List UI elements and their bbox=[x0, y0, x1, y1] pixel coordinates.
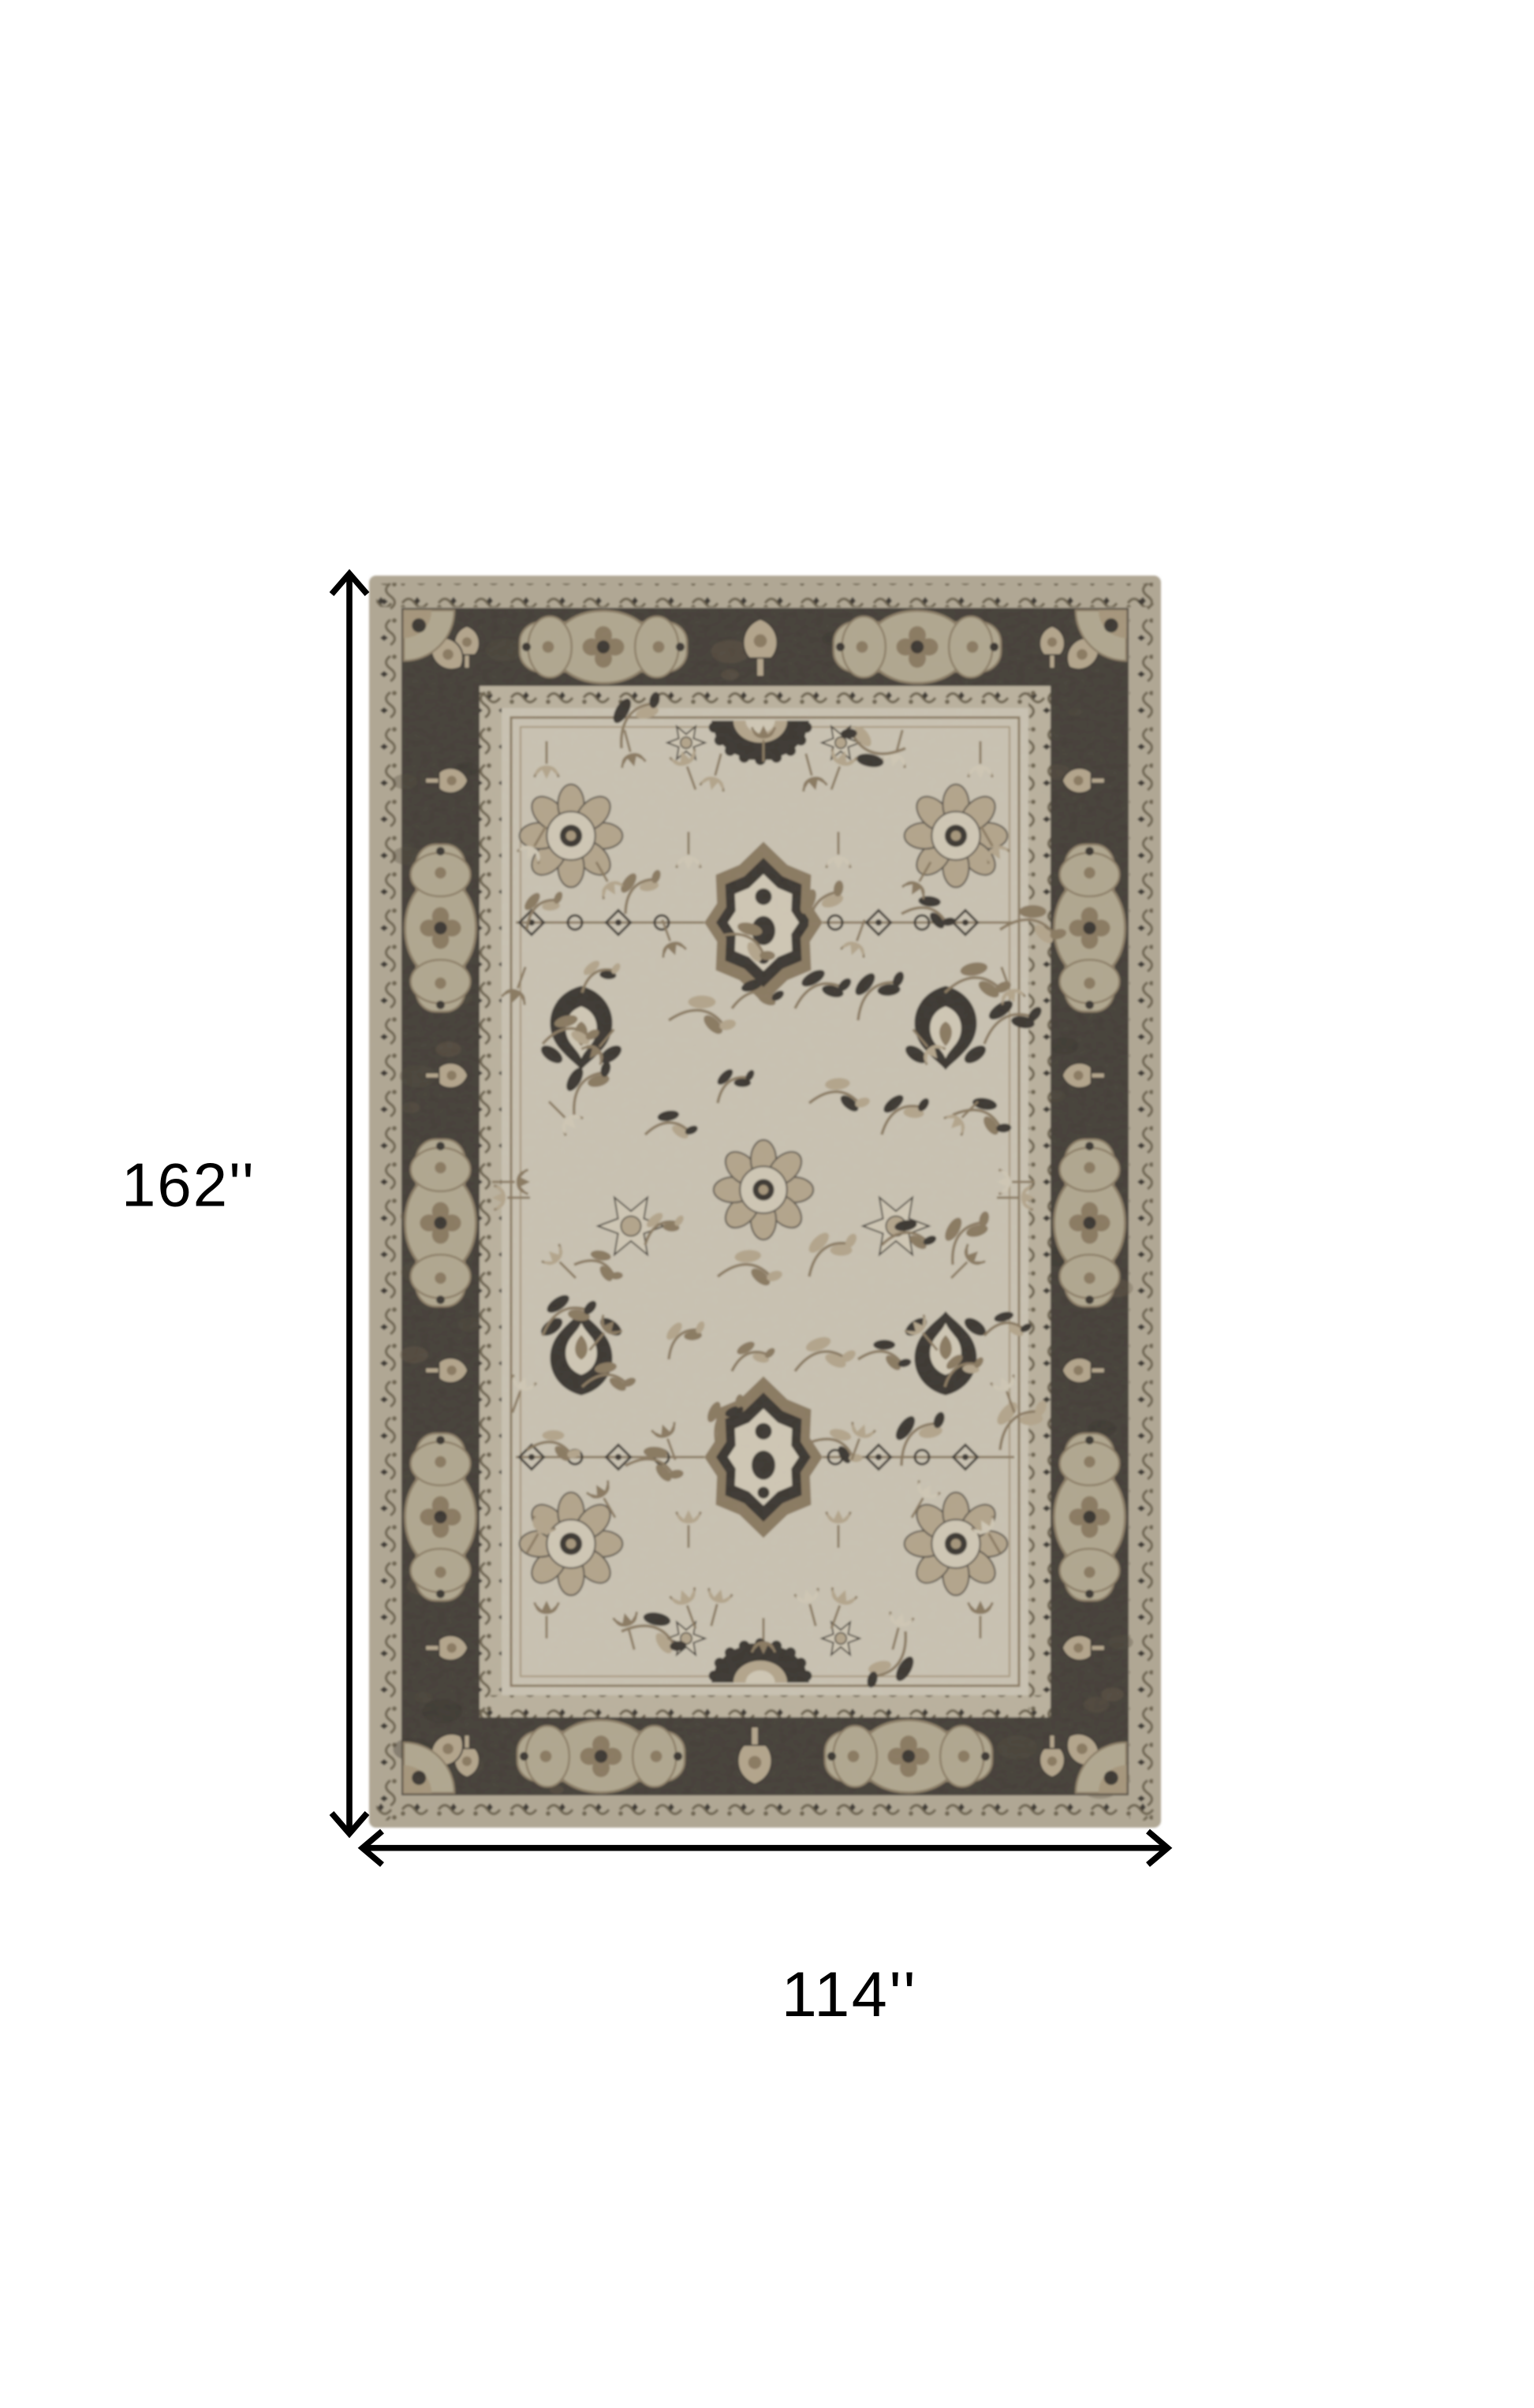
svg-text:162'': 162'' bbox=[121, 1150, 256, 1220]
svg-text:114'': 114'' bbox=[782, 1959, 918, 2030]
